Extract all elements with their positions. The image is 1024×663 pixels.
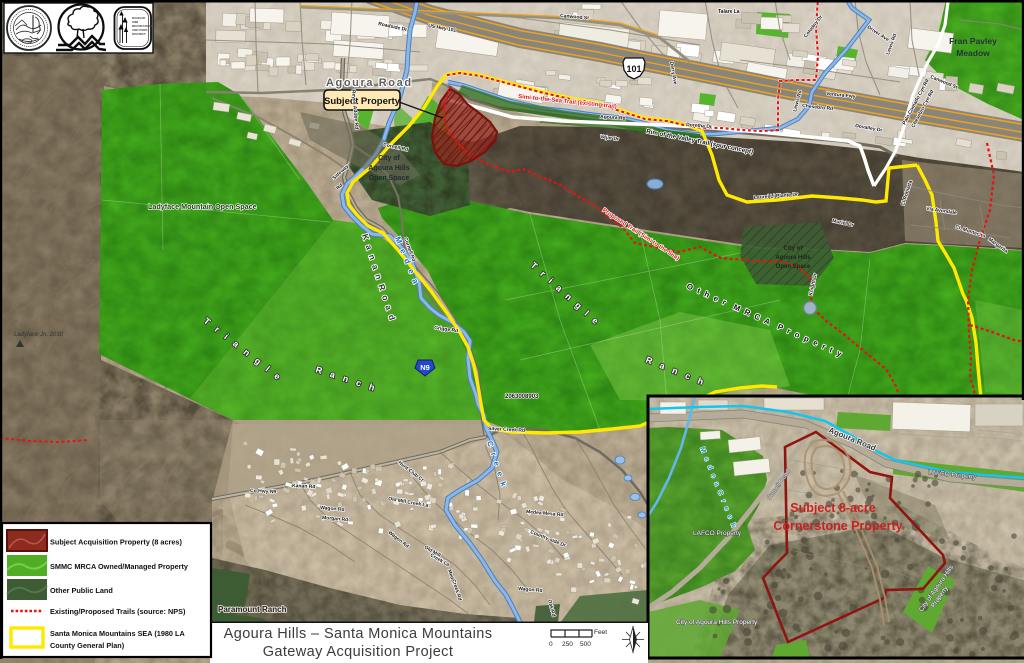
svg-text:County General Plan): County General Plan) xyxy=(50,641,125,650)
svg-text:Subject Acquisition Property (: Subject Acquisition Property (8 acres) xyxy=(50,538,182,547)
svg-text:Ladyface Jn. 2030: Ladyface Jn. 2030 xyxy=(14,332,64,338)
svg-text:N9: N9 xyxy=(420,363,430,372)
svg-text:Kanan Rd: Kanan Rd xyxy=(292,483,316,490)
svg-text:101: 101 xyxy=(626,64,641,74)
svg-text:Open Space: Open Space xyxy=(776,264,811,270)
svg-text:Subject 8-acre: Subject 8-acre xyxy=(790,501,876,515)
svg-text:Agoura Hills: Agoura Hills xyxy=(775,255,811,261)
svg-text:Subject Property: Subject Property xyxy=(324,96,401,107)
svg-text:250: 250 xyxy=(562,641,573,648)
svg-text:Meadow: Meadow xyxy=(956,48,990,58)
svg-text:Paramount Ranch: Paramount Ranch xyxy=(218,605,287,614)
svg-text:Agoura Hills – Santa Monica Mo: Agoura Hills – Santa Monica Mountains xyxy=(224,626,493,642)
svg-text:Agoura Road: Agoura Road xyxy=(326,77,413,89)
svg-text:Feet: Feet xyxy=(594,629,607,636)
svg-text:Open Space: Open Space xyxy=(369,175,410,182)
svg-text:DISTRICT: DISTRICT xyxy=(132,32,146,36)
svg-text:Other Public Land: Other Public Land xyxy=(50,586,113,595)
svg-text:500: 500 xyxy=(580,641,591,648)
svg-text:Fran Pavley: Fran Pavley xyxy=(949,36,997,46)
svg-text:Existing/Proposed Trails (sour: Existing/Proposed Trails (source: NPS) xyxy=(50,607,186,616)
svg-text:0: 0 xyxy=(549,641,553,648)
svg-text:Agoura Hills: Agoura Hills xyxy=(368,165,409,172)
svg-text:Gateway Acquisition Project: Gateway Acquisition Project xyxy=(263,644,454,660)
svg-text:Cornerstone Property: Cornerstone Property xyxy=(773,519,902,533)
svg-text:City of: City of xyxy=(378,155,400,162)
svg-text:Santa Monica Mountains SEA (19: Santa Monica Mountains SEA (1980 LA xyxy=(50,629,185,638)
svg-text:City of Agoura Hills Property: City of Agoura Hills Property xyxy=(676,619,758,626)
svg-text:Ladyface Mountain Open Space: Ladyface Mountain Open Space xyxy=(148,202,257,211)
svg-text:SMMC MRCA Owned/Managed Proper: SMMC MRCA Owned/Managed Property xyxy=(50,562,189,571)
svg-text:Talare La: Talare La xyxy=(718,9,740,15)
svg-text:LAFCO Property: LAFCO Property xyxy=(693,530,742,537)
svg-text:City of: City of xyxy=(784,246,804,252)
svg-text:2063008903: 2063008903 xyxy=(505,394,539,400)
